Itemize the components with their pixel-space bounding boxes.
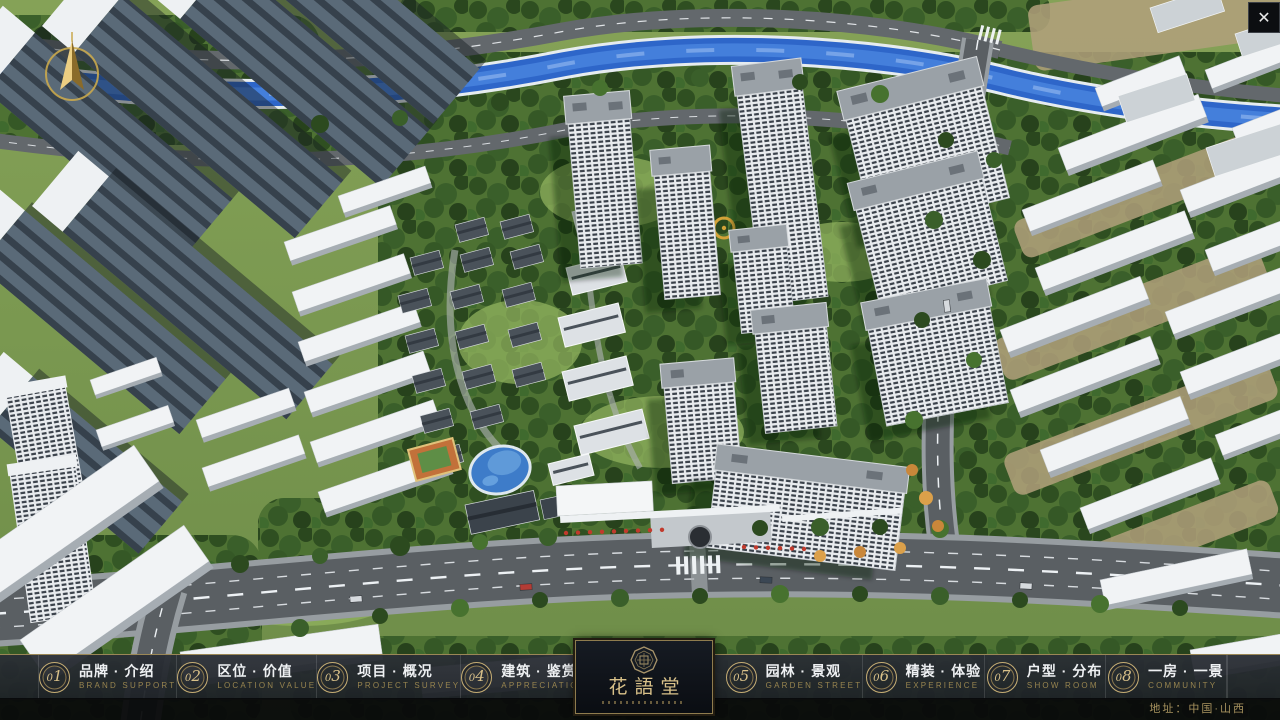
- logo-divider: [602, 701, 686, 704]
- nav-sublabel: LOCATION VALUE: [217, 682, 316, 690]
- site-aerial-map[interactable]: [0, 0, 1280, 720]
- nav-sublabel: BRAND SUPPORT: [79, 682, 176, 690]
- nav-sublabel: EXPERIENCE: [906, 682, 980, 690]
- nav-item-interior[interactable]: 06 精装 · 体验EXPERIENCE: [863, 655, 984, 699]
- nav-sublabel: SHOW ROOM: [1027, 682, 1099, 690]
- nav-sublabel: COMMUNITY: [1148, 682, 1217, 690]
- project-logo-panel[interactable]: 花語堂: [575, 640, 713, 714]
- nav-item-project[interactable]: 03 项目 · 概况PROJECT SURVEY: [317, 655, 461, 699]
- nav-spacer: [1227, 655, 1280, 699]
- close-icon: ✕: [1257, 8, 1270, 28]
- nav-number-badge: 08: [1108, 662, 1139, 693]
- seal-emblem-icon: [630, 646, 658, 676]
- nav-label: 区位 · 价值: [217, 664, 292, 679]
- nav-number-badge: 06: [866, 662, 897, 693]
- nav-label: 园林 · 景观: [766, 664, 841, 679]
- close-button[interactable]: ✕: [1248, 2, 1280, 33]
- nav-number-badge: 07: [987, 662, 1018, 693]
- nav-item-views[interactable]: 08 一房 · 一景COMMUNITY: [1106, 655, 1227, 699]
- map-render: [0, 0, 1280, 720]
- nav-item-architecture[interactable]: 04 建筑 · 鉴赏APPRECIATION: [461, 655, 587, 699]
- nav-item-location[interactable]: 02 区位 · 价值LOCATION VALUE: [177, 655, 317, 699]
- project-address: 地址：中国·山西: [1149, 700, 1246, 716]
- nav-label: 一房 · 一景: [1148, 664, 1223, 679]
- nav-number-badge: 05: [726, 662, 757, 693]
- nav-label: 建筑 · 鉴赏: [501, 664, 576, 679]
- bottom-navigation: 01 品牌 · 介绍BRAND SUPPORT 02 区位 · 价值LOCATI…: [0, 654, 1280, 720]
- nav-sublabel: PROJECT SURVEY: [357, 682, 460, 690]
- nav-item-garden[interactable]: 05 园林 · 景观GARDEN STREET: [726, 655, 864, 699]
- nav-label: 项目 · 概况: [357, 664, 432, 679]
- nav-sublabel: GARDEN STREET: [766, 682, 863, 690]
- nav-number-badge: 04: [461, 662, 492, 693]
- nav-label: 品牌 · 介绍: [79, 664, 154, 679]
- nav-spacer: [0, 655, 39, 699]
- nav-item-brand[interactable]: 01 品牌 · 介绍BRAND SUPPORT: [39, 655, 177, 699]
- nav-sublabel: APPRECIATION: [501, 682, 586, 690]
- project-logo-title: 花語堂: [601, 678, 686, 697]
- nav-number-badge: 02: [177, 662, 208, 693]
- compass-north-indicator: [36, 30, 108, 114]
- nav-item-floorplan[interactable]: 07 户型 · 分布SHOW ROOM: [985, 655, 1106, 699]
- nav-label: 精装 · 体验: [906, 664, 981, 679]
- nav-number-badge: 03: [317, 662, 348, 693]
- nav-number-badge: 01: [39, 662, 70, 693]
- nav-label: 户型 · 分布: [1027, 664, 1102, 679]
